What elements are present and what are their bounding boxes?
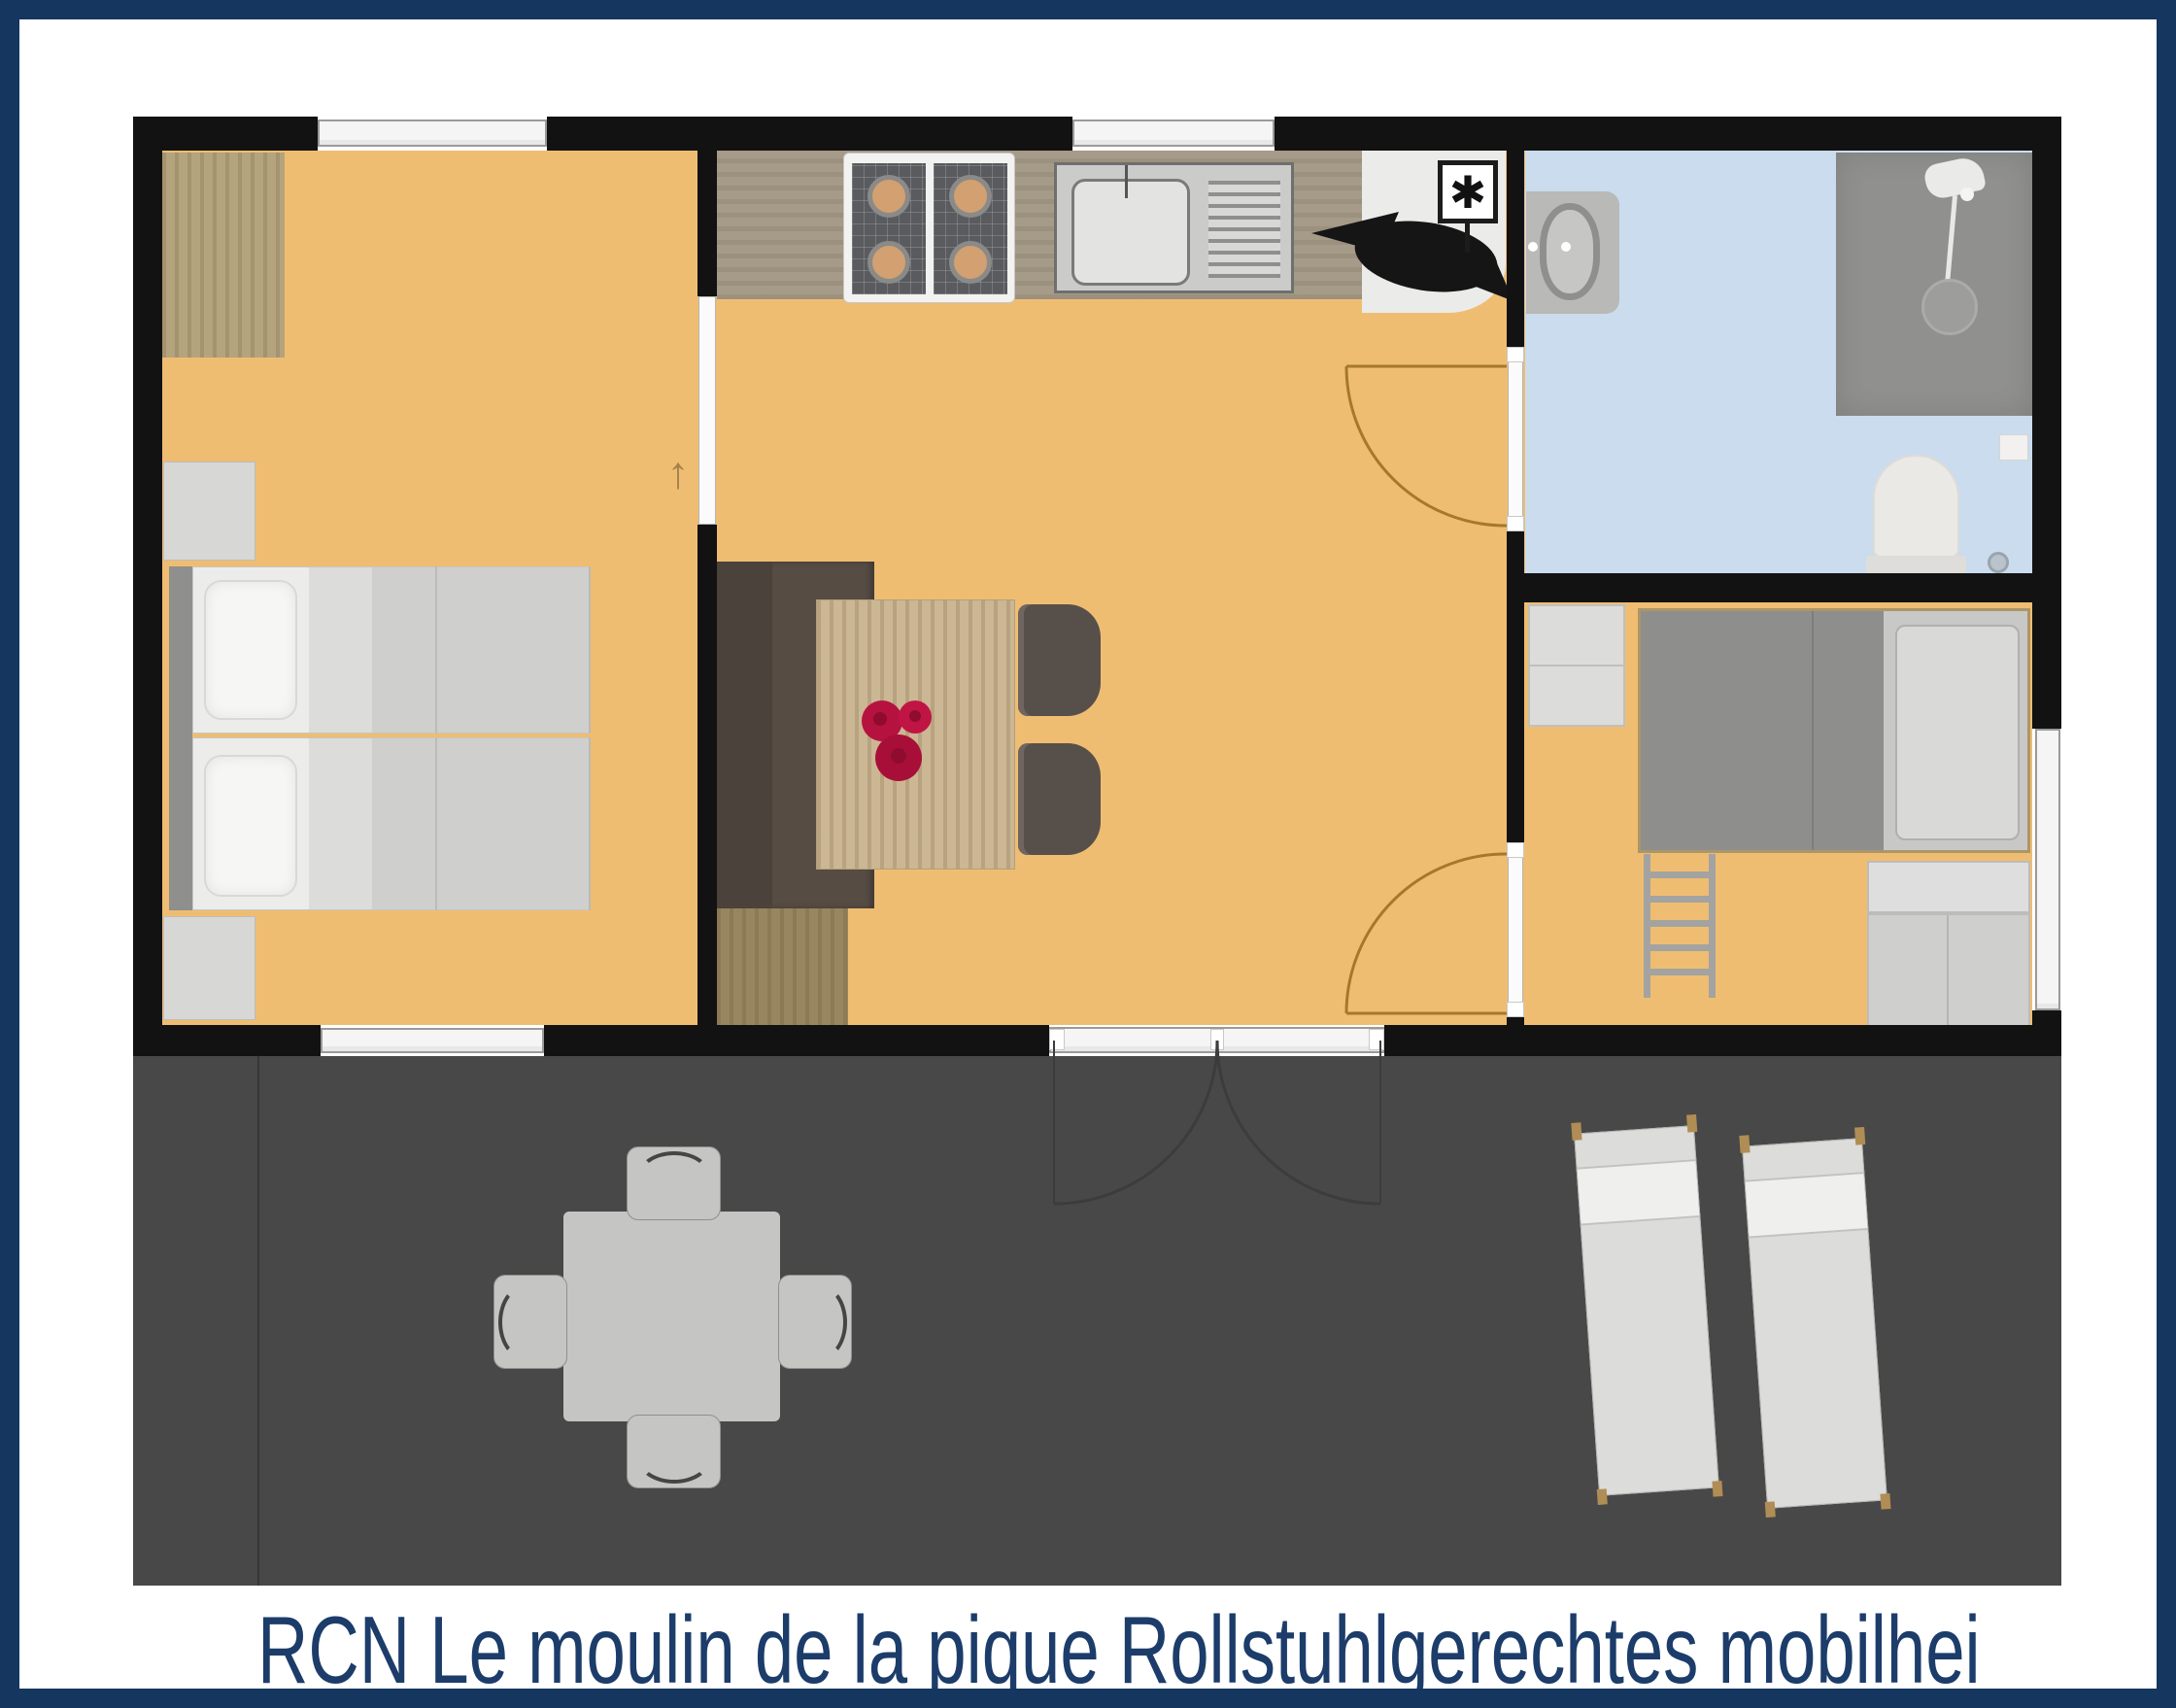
- caption-area: RCN Le moulin de la pique Rollstuhlgerec…: [257, 1595, 2158, 1704]
- floorplan-canvas: ↑ ✱: [0, 0, 2176, 1708]
- door-swing-arcs: [0, 0, 2176, 1708]
- page-title: RCN Le moulin de la pique Rollstuhlgerec…: [257, 1595, 1981, 1704]
